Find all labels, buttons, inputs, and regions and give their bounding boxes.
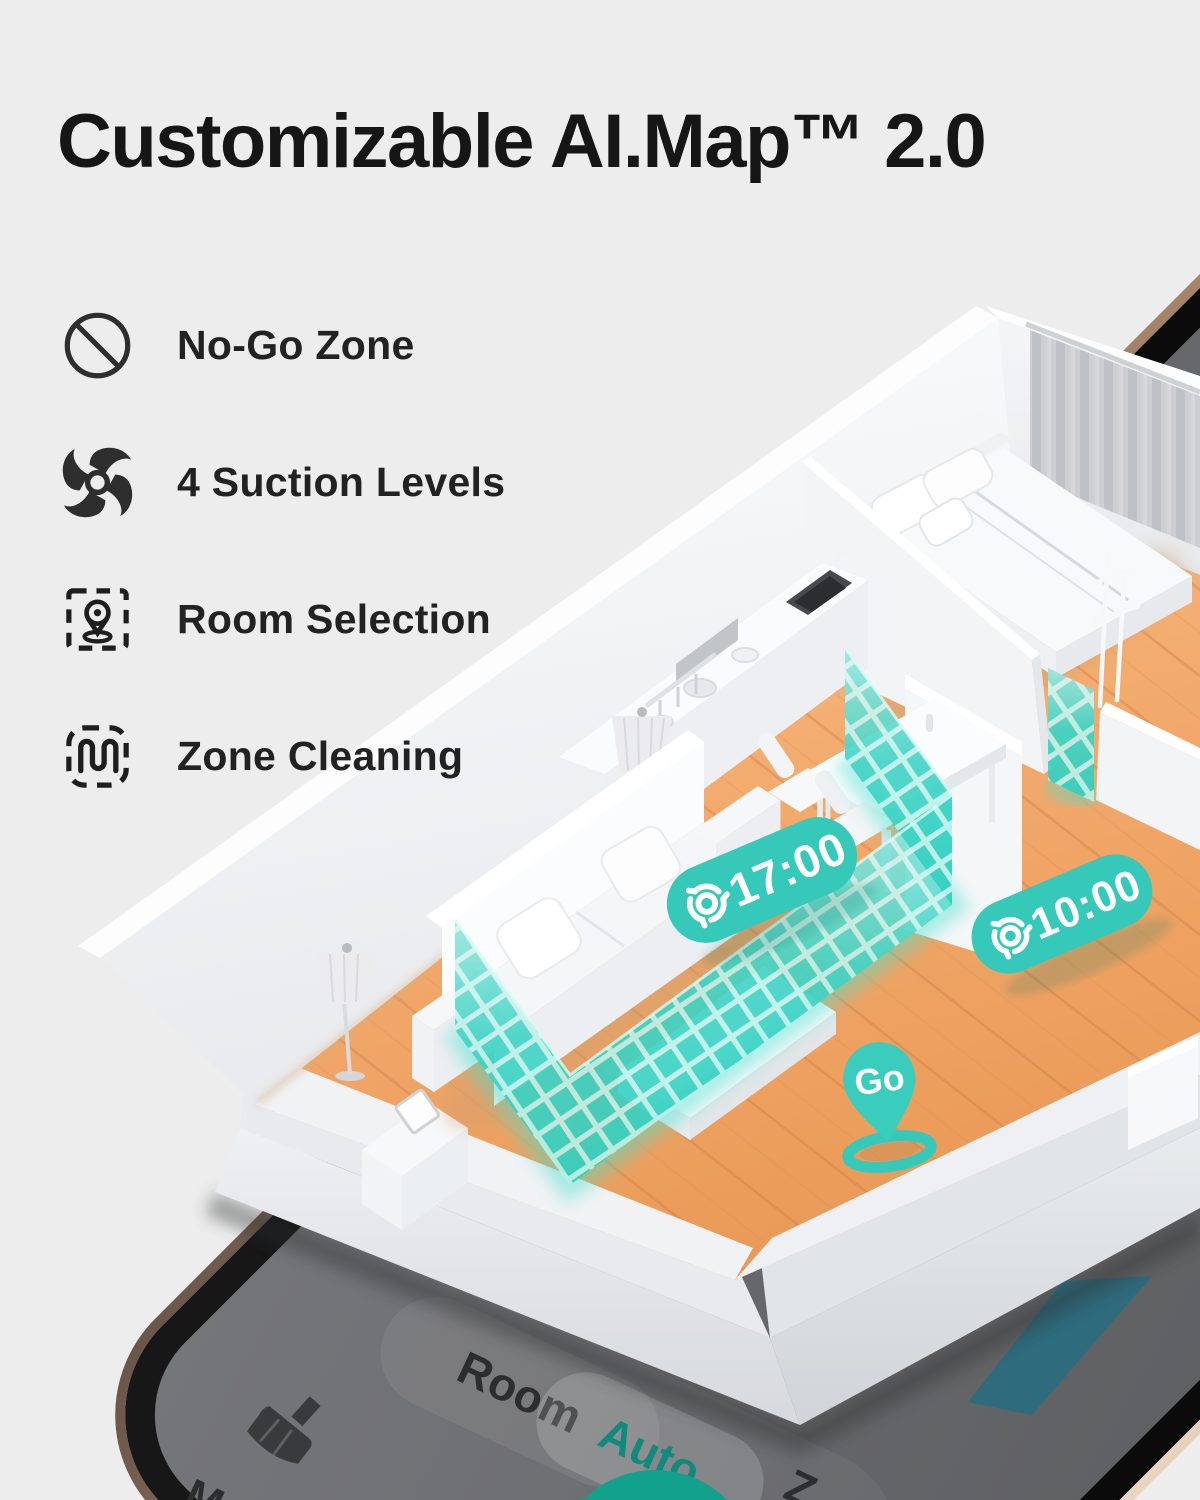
pot [684,679,716,697]
feature-list: No-Go Zone 4 Suction Levels [60,308,505,856]
marketing-page: Room Auto Z M [0,0,1200,1500]
feature-label: 4 Suction Levels [177,459,505,506]
zone-cleaning-icon [60,719,135,794]
feature-room-selection: Room Selection [60,582,505,657]
feature-label: No-Go Zone [177,322,415,369]
feature-no-go-zone: No-Go Zone [60,308,505,383]
room-selection-icon [60,582,135,657]
page-title: Customizable AI.Map™ 2.0 [57,98,985,185]
table-vase [926,714,933,732]
feature-zone-cleaning: Zone Cleaning [60,719,505,794]
plate [732,648,758,662]
go-label: Go [852,1056,907,1104]
no-go-icon [60,308,135,383]
feature-label: Zone Cleaning [177,733,463,780]
feature-label: Room Selection [177,596,491,643]
suction-icon [60,445,135,520]
feature-suction-levels: 4 Suction Levels [60,445,505,520]
doorway-grid [1048,668,1094,804]
